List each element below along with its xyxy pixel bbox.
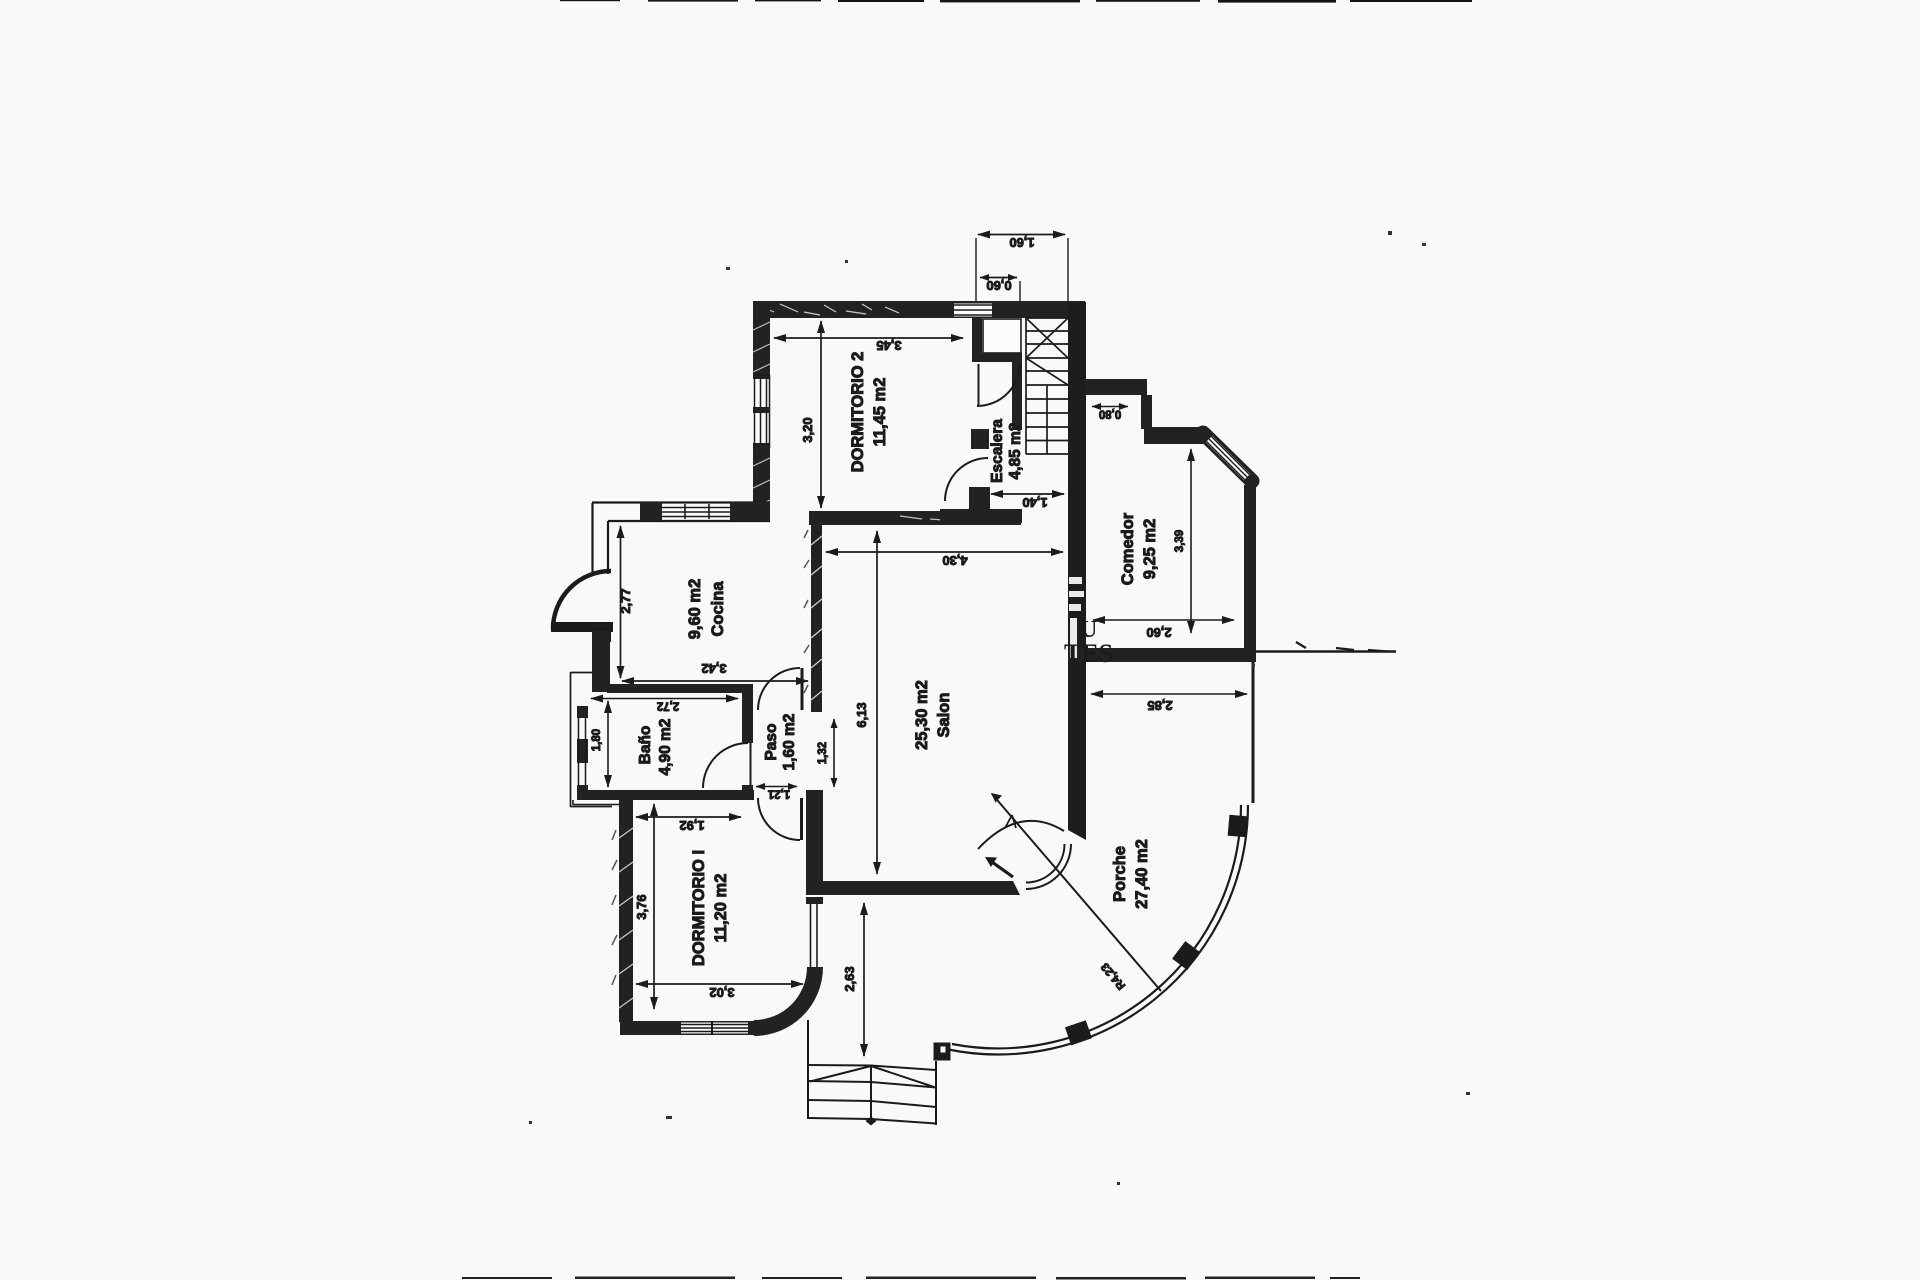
svg-text:Cocina: Cocina	[709, 581, 727, 637]
svg-text:1,32: 1,32	[817, 742, 829, 764]
svg-text:9,60 m2: 9,60 m2	[686, 579, 704, 640]
svg-text:1,60 m2: 1,60 m2	[781, 714, 798, 771]
svg-text:2,72: 2,72	[657, 700, 679, 712]
svg-text:4,85 m2: 4,85 m2	[1007, 423, 1024, 480]
svg-text:27,40 m2: 27,40 m2	[1133, 839, 1151, 909]
svg-text:1,60: 1,60	[1009, 235, 1034, 250]
svg-text:TES: TES	[1064, 639, 1113, 668]
svg-text:Porche: Porche	[1111, 846, 1129, 902]
svg-text:6,13: 6,13	[854, 702, 869, 727]
svg-text:0,80: 0,80	[1099, 408, 1121, 420]
svg-text:3,20: 3,20	[800, 417, 815, 442]
svg-text:25,30 m2: 25,30 m2	[913, 680, 931, 750]
svg-text:9,25 m2: 9,25 m2	[1141, 519, 1159, 580]
svg-text:DORMITORIO 2: DORMITORIO 2	[849, 352, 867, 473]
svg-text:Comedor: Comedor	[1119, 512, 1137, 585]
svg-text:1,92: 1,92	[679, 818, 704, 833]
svg-text:4,30: 4,30	[942, 553, 967, 568]
svg-text:1,40: 1,40	[1022, 495, 1047, 510]
svg-text:1,80: 1,80	[591, 729, 603, 751]
svg-text:3,45: 3,45	[876, 338, 901, 353]
svg-text:Baño: Baño	[637, 726, 654, 765]
svg-text:Escalera: Escalera	[989, 419, 1006, 483]
svg-text:2,77: 2,77	[618, 588, 633, 613]
svg-text:3,02: 3,02	[709, 985, 734, 1000]
svg-text:Paso: Paso	[763, 723, 780, 760]
svg-text:2,63: 2,63	[842, 966, 857, 991]
svg-text:3,76: 3,76	[634, 894, 649, 919]
svg-text:2,60: 2,60	[1146, 625, 1171, 640]
svg-text:Salon: Salon	[935, 693, 953, 738]
svg-text:0,60: 0,60	[986, 278, 1011, 293]
svg-text:2,85: 2,85	[1147, 698, 1172, 713]
svg-text:1,21: 1,21	[767, 788, 790, 800]
svg-text:11,45 m2: 11,45 m2	[871, 378, 889, 447]
svg-text:DORMITORIO I: DORMITORIO I	[690, 850, 708, 966]
svg-text:4,90 m2: 4,90 m2	[657, 719, 674, 776]
svg-text:11,20 m2: 11,20 m2	[712, 874, 730, 943]
svg-text:3,39: 3,39	[1174, 530, 1186, 552]
svg-text:3,42: 3,42	[701, 661, 726, 676]
